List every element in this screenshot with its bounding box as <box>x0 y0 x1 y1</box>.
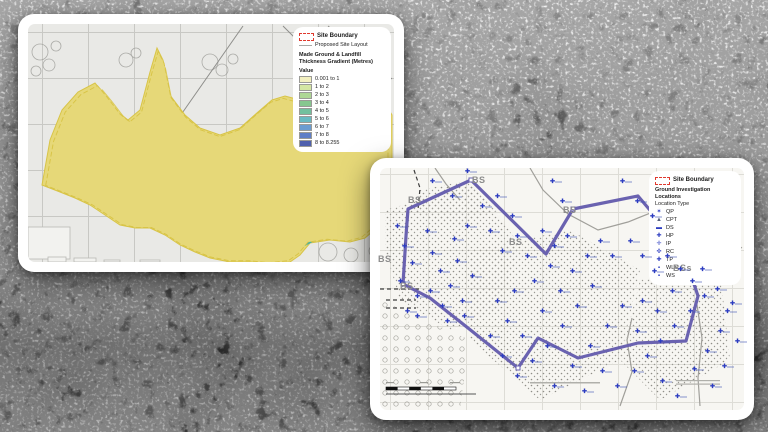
site-boundary-label: Site Boundary <box>673 176 714 185</box>
location-type-heading: Location Type <box>655 201 735 208</box>
location-type-row: ▪WS <box>655 272 735 280</box>
location-type-icon: ✚ <box>655 257 663 264</box>
gradient-title-line1: Made Ground & Landfill <box>299 52 385 59</box>
site-boundary-icon <box>299 33 314 41</box>
legend-proposed-layout-row: Proposed Site Layout <box>299 41 385 50</box>
gradient-class-label: 6 to 7 <box>315 123 329 131</box>
gradient-swatch <box>299 100 312 107</box>
gradient-class-row: 0.001 to 1 <box>299 75 385 83</box>
gradient-class-label: 5 to 6 <box>315 115 329 123</box>
gradient-swatch <box>299 116 312 123</box>
ground-investigation-figure: Site Boundary Ground Investigation Locat… <box>370 158 754 420</box>
gradient-legend: Site Boundary Proposed Site Layout Made … <box>293 27 391 152</box>
gradient-class-label: 2 to 3 <box>315 91 329 99</box>
location-type-label: IP <box>666 240 671 248</box>
gradient-class-row: 5 to 6 <box>299 115 385 123</box>
location-type-label: RC <box>666 248 674 256</box>
legend-site-boundary-row: Site Boundary <box>299 32 385 41</box>
gradient-swatch <box>299 124 312 131</box>
gradient-class-label: 7 to 8 <box>315 131 329 139</box>
location-type-label: WS <box>666 272 675 280</box>
location-type-label: TP <box>666 256 673 264</box>
gradient-class-list: 0.001 to 11 to 22 to 33 to 44 to 55 to 6… <box>299 75 385 147</box>
proposed-layout-line-icon <box>299 45 312 46</box>
location-type-row: ▲CPT <box>655 216 735 224</box>
location-type-icon: ✶ <box>655 209 663 216</box>
gradient-class-row: 1 to 2 <box>299 83 385 91</box>
thickness-gradient-figure: Site Boundary Proposed Site Layout Made … <box>18 14 404 272</box>
gradient-class-row: 8 to 8.255 <box>299 139 385 147</box>
gradient-class-row: 7 to 8 <box>299 131 385 139</box>
location-type-row: ✚HP <box>655 232 735 240</box>
gradient-class-row: 4 to 5 <box>299 107 385 115</box>
gradient-class-row: 6 to 7 <box>299 123 385 131</box>
gradient-swatch <box>299 140 312 147</box>
location-type-icon: ▪ <box>655 265 663 272</box>
location-type-row: ✚TP <box>655 256 735 264</box>
thickness-gradient-map: Site Boundary Proposed Site Layout Made … <box>28 24 394 262</box>
location-type-list: ✶QP▲CPT▬DS✚HP✛IP✜RC✚TP▪WLS▪WS <box>655 208 735 280</box>
legend-site-boundary-row: Site Boundary <box>655 176 735 185</box>
gradient-class-row: 3 to 4 <box>299 99 385 107</box>
value-heading: Value <box>299 67 385 75</box>
gradient-class-label: 8 to 8.255 <box>315 139 339 147</box>
location-type-label: CPT <box>666 216 677 224</box>
location-type-label: QP <box>666 208 674 216</box>
location-type-row: ✛IP <box>655 240 735 248</box>
location-type-icon: ▪ <box>655 273 663 280</box>
gradient-class-label: 3 to 4 <box>315 99 329 107</box>
legend-subtitle: Ground Investigation Locations <box>655 187 735 201</box>
gradient-swatch <box>299 84 312 91</box>
proposed-layout-label: Proposed Site Layout <box>315 41 368 50</box>
investigation-legend: Site Boundary Ground Investigation Locat… <box>649 171 741 285</box>
gradient-class-row: 2 to 3 <box>299 91 385 99</box>
location-type-row: ✜RC <box>655 248 735 256</box>
composite-screenshot: Site Boundary Proposed Site Layout Made … <box>0 0 768 432</box>
gradient-title-line2: Thickness Gradient (Metres) <box>299 59 385 66</box>
location-type-icon: ✜ <box>655 249 663 256</box>
gradient-class-label: 4 to 5 <box>315 107 329 115</box>
location-type-icon: ▬ <box>655 225 663 232</box>
gradient-swatch <box>299 108 312 115</box>
location-type-label: WLS <box>666 264 678 272</box>
location-type-row: ▬DS <box>655 224 735 232</box>
gradient-swatch <box>299 76 312 83</box>
location-type-icon: ✛ <box>655 241 663 248</box>
location-type-label: DS <box>666 224 674 232</box>
gradient-class-label: 1 to 2 <box>315 83 329 91</box>
gradient-swatch <box>299 132 312 139</box>
gradient-swatch <box>299 92 312 99</box>
site-boundary-label: Site Boundary <box>317 32 358 41</box>
location-type-row: ▪WLS <box>655 264 735 272</box>
gradient-class-label: 0.001 to 1 <box>315 75 339 83</box>
location-type-row: ✶QP <box>655 208 735 216</box>
ground-investigation-map: Site Boundary Ground Investigation Locat… <box>380 168 744 410</box>
location-type-label: HP <box>666 232 674 240</box>
site-boundary-icon <box>655 177 670 185</box>
location-type-icon: ✚ <box>655 233 663 240</box>
location-type-icon: ▲ <box>655 217 663 224</box>
